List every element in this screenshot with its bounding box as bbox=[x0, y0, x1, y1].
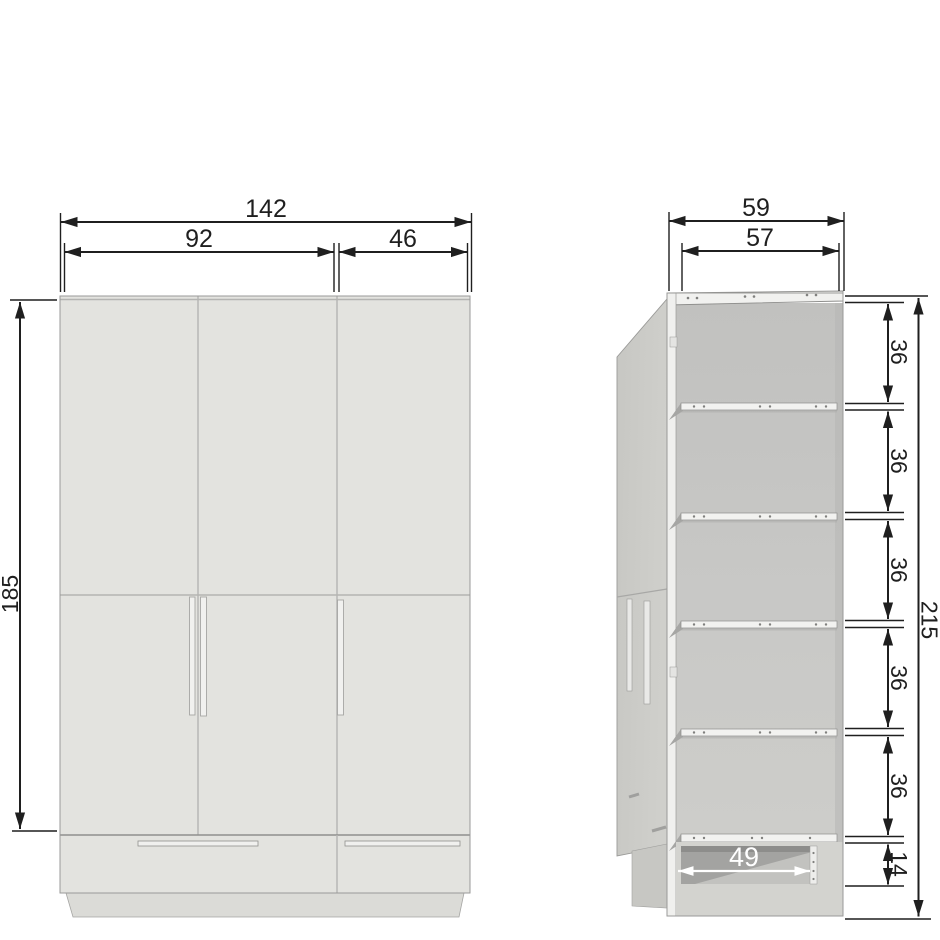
dim-label-drawer-height: 14 bbox=[886, 851, 912, 877]
dim-label-drawer-width: 49 bbox=[729, 842, 759, 872]
dim-label-gap-5: 36 bbox=[886, 773, 912, 799]
dim-label-total-height: 215 bbox=[917, 601, 940, 639]
dim-label-gap-3: 36 bbox=[886, 557, 912, 583]
shelf-shadow bbox=[681, 628, 837, 631]
drawer-handle-right bbox=[345, 841, 460, 846]
hinge-plate-middle bbox=[670, 667, 677, 677]
hinge-plate-top bbox=[670, 337, 677, 347]
interior-back-panel bbox=[676, 303, 843, 916]
drawing-canvas: 142 92 46 185 bbox=[0, 0, 940, 940]
dim-label-right-section: 46 bbox=[389, 225, 417, 253]
dim-label-left-section: 92 bbox=[185, 225, 213, 253]
side-panel-handle-2 bbox=[644, 601, 650, 704]
shelf-shadow bbox=[681, 410, 837, 413]
wardrobe-dimension-drawing: 142 92 46 185 bbox=[0, 0, 940, 940]
side-angled-front-panel bbox=[617, 299, 667, 856]
shelf-shadow bbox=[681, 736, 837, 739]
door-handle-left bbox=[190, 597, 196, 715]
dim-label-gap-1: 36 bbox=[886, 339, 912, 365]
left-front-edge-strip bbox=[667, 293, 676, 916]
dim-label-inner-depth: 57 bbox=[746, 224, 774, 252]
interior-right-wall bbox=[835, 303, 843, 916]
drawer-handle-left bbox=[138, 841, 258, 846]
dim-label-gap-2: 36 bbox=[886, 448, 912, 474]
dim-label-outer-depth: 59 bbox=[742, 194, 770, 222]
dim-label-gap-4: 36 bbox=[886, 665, 912, 691]
side-panel-handle-1 bbox=[627, 599, 632, 691]
shelf-shadow bbox=[681, 520, 837, 523]
front-view bbox=[60, 296, 470, 917]
dim-label-door-height: 185 bbox=[0, 575, 23, 613]
front-plinth bbox=[66, 893, 464, 917]
side-plinth bbox=[632, 844, 667, 908]
dim-label-total-width: 142 bbox=[245, 195, 287, 223]
door-handle-middle bbox=[201, 597, 207, 716]
side-view: 49 bbox=[617, 291, 843, 916]
door-handle-right bbox=[338, 600, 344, 715]
